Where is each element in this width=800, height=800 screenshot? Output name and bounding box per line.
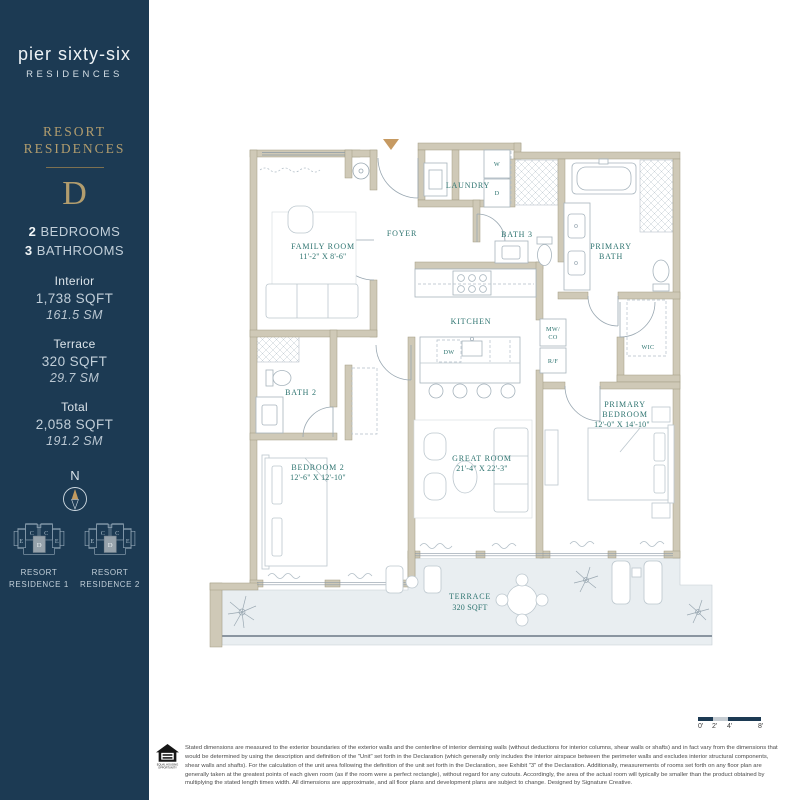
north-compass-icon: N xyxy=(58,468,92,520)
stat-total-label: Total xyxy=(0,400,149,414)
collection-line2: RESIDENCES xyxy=(0,141,149,158)
keyplan-1-label-line1: RESORT xyxy=(8,567,70,579)
keyplan-1-diagram: C C E E D xyxy=(8,516,70,562)
keyplan-2-label-line1: RESORT xyxy=(79,567,141,579)
entry-marker-icon xyxy=(383,139,399,150)
keyplan-2-unit-e1: E xyxy=(90,538,94,545)
scale-tick-0: 0' xyxy=(698,723,703,730)
stat-terrace-sm: 29.7 SM xyxy=(0,371,149,385)
stat-terrace-sqft: 320 SQFT xyxy=(0,354,149,369)
primary-bath-label1: PRIMARY xyxy=(590,242,632,251)
bath3-label: BATH 3 xyxy=(501,230,533,239)
keyplan-2-unit-c1: C xyxy=(101,530,105,537)
stat-total-sqft: 2,058 SQFT xyxy=(0,417,149,432)
collection-line1: RESORT xyxy=(0,124,149,141)
keyplan-1-unit-d: D xyxy=(37,542,42,549)
dryer-label: D xyxy=(495,190,500,197)
terrace-label: TERRACE xyxy=(449,592,491,601)
dishwasher-label: DW xyxy=(444,349,455,356)
floorplan: FAMILY ROOM 11'-2" X 8'-6" FOYER LAUNDRY… xyxy=(200,128,720,676)
primary-bedroom-dims: 12'-0" X 14'-10" xyxy=(594,420,650,429)
bath3-shower xyxy=(514,160,558,205)
keyplan-1-unit-e1: E xyxy=(19,538,23,545)
keyplan-residence-2: C C E E D RESORT RESIDENCE 2 xyxy=(79,516,141,591)
stat-total: Total 2,058 SQFT 191.2 SM xyxy=(0,400,149,448)
laundry-label: LAUNDRY xyxy=(446,181,490,190)
bed-bath-summary: 2 BEDROOMS 3 BATHROOMS xyxy=(0,223,149,261)
bedroom2-label: BEDROOM 2 xyxy=(291,463,344,472)
compass-n-label: N xyxy=(70,468,79,483)
keyplan-2-unit-d: D xyxy=(108,542,113,549)
collection-title: RESORT RESIDENCES D xyxy=(0,124,149,213)
brand-subtitle: RESIDENCES xyxy=(0,69,149,80)
washer-label: W xyxy=(494,161,500,168)
keyplan-1-unit-c1: C xyxy=(30,530,34,537)
keyplan-2-diagram: C C E E D xyxy=(79,516,141,562)
scale-tick-8: 8' xyxy=(758,723,763,730)
keyplan-2-unit-c2: C xyxy=(115,530,119,537)
primary-bath-label2: BATH xyxy=(599,252,623,261)
bathrooms-count: 3 xyxy=(25,243,33,258)
keyplan-1-label-line2: RESIDENCE 1 xyxy=(8,579,70,591)
brand-logo: pier sixty-six RESIDENCES xyxy=(0,44,149,80)
scale-tick-4: 4' xyxy=(727,723,732,730)
wic-label: WIC xyxy=(642,344,655,351)
bathrooms-label: BATHROOMS xyxy=(33,243,124,258)
bath2-label: BATH 2 xyxy=(285,388,317,397)
great-room-label: GREAT ROOM xyxy=(452,454,512,463)
stat-interior-label: Interior xyxy=(0,274,149,288)
keyplan-2-label-line2: RESIDENCE 2 xyxy=(79,579,141,591)
keyplan-2-unit-e2: E xyxy=(126,538,130,545)
scale-bar-segments xyxy=(698,717,764,721)
stat-interior-sqft: 1,738 SQFT xyxy=(0,291,149,306)
footer: EQUAL HOUSING OPPORTUNITY Stated dimensi… xyxy=(156,744,786,788)
stat-interior-sm: 161.5 SM xyxy=(0,308,149,322)
microwave-label2: CO xyxy=(548,334,557,341)
gold-divider xyxy=(46,167,104,168)
great-room-dims: 21'-4" X 22'-3" xyxy=(456,464,508,473)
keyplans: C C E E D RESORT RESIDENCE 1 xyxy=(0,516,149,591)
stat-total-sm: 191.2 SM xyxy=(0,434,149,448)
brand-name: pier sixty-six xyxy=(0,44,149,65)
microwave-label1: MW/ xyxy=(546,326,560,333)
foyer-label: FOYER xyxy=(387,229,417,238)
primary-shower xyxy=(640,160,673,232)
keyplan-1-unit-e2: E xyxy=(55,538,59,545)
keyplan-1-unit-c2: C xyxy=(44,530,48,537)
family-room-label: FAMILY ROOM xyxy=(291,242,355,251)
stat-terrace: Terrace 320 SQFT 29.7 SM xyxy=(0,337,149,385)
primary-bedroom-label1: PRIMARY xyxy=(604,400,646,409)
bedrooms-label: BEDROOMS xyxy=(36,224,120,239)
disclaimer-text: Stated dimensions are measured to the ex… xyxy=(185,744,781,788)
bath2-shower xyxy=(257,333,299,362)
equal-housing-icon: EQUAL HOUSING OPPORTUNITY xyxy=(156,744,179,769)
bedroom2-dims: 12'-6" X 12'-10" xyxy=(290,473,346,482)
stat-interior: Interior 1,738 SQFT 161.5 SM xyxy=(0,274,149,322)
keyplan-residence-1: C C E E D RESORT RESIDENCE 1 xyxy=(8,516,70,591)
terrace-area-label: 320 SQFT xyxy=(452,603,487,612)
scale-bar: 0' 2' 4' 8' xyxy=(698,717,764,733)
family-room-dims: 11'-2" X 8'-6" xyxy=(299,252,346,261)
light-fixture-icon xyxy=(353,163,369,179)
stat-terrace-label: Terrace xyxy=(0,337,149,351)
primary-bedroom-label2: BEDROOM xyxy=(602,410,648,419)
kitchen-label: KITCHEN xyxy=(451,317,492,326)
sidebar: pier sixty-six RESIDENCES RESORT RESIDEN… xyxy=(0,0,149,800)
scale-tick-2: 2' xyxy=(712,723,717,730)
fridge-label: R/F xyxy=(548,358,558,365)
unit-letter: D xyxy=(0,175,149,213)
equal-housing-caption2: OPPORTUNITY xyxy=(158,765,177,769)
